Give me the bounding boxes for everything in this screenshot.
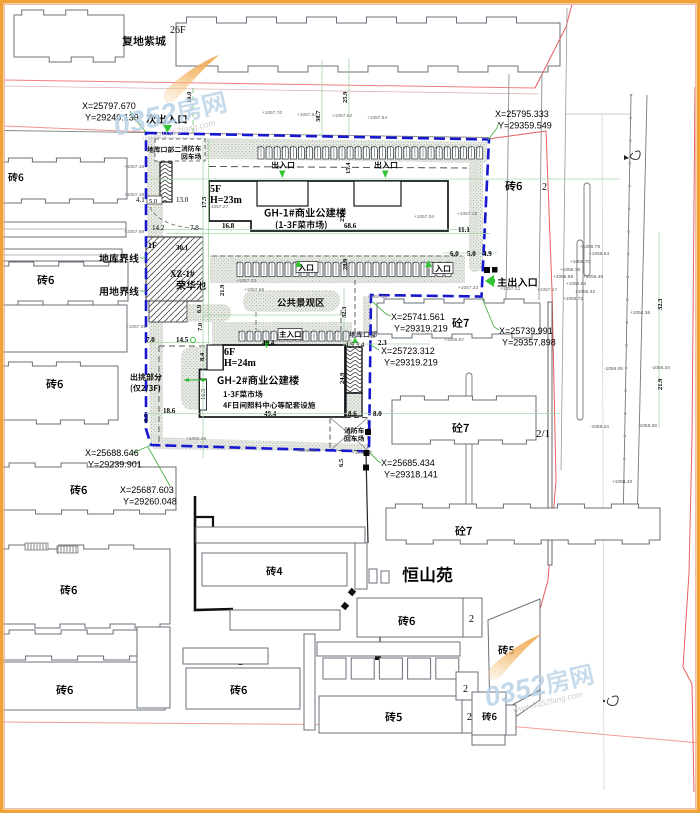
svg-text:Y=29260.048: Y=29260.048 <box>123 497 177 507</box>
svg-text:+1056.45: +1056.45 <box>583 274 603 280</box>
svg-text:X=25685.434: X=25685.434 <box>381 458 435 468</box>
svg-text:+1056.93: +1056.93 <box>296 448 316 454</box>
svg-text:+1057.23: +1057.23 <box>458 285 478 291</box>
svg-text:+1057.22: +1057.22 <box>500 286 520 292</box>
svg-text:30.1: 30.1 <box>176 244 189 252</box>
svg-text:6.9: 6.9 <box>196 304 203 313</box>
svg-text:+1057.62: +1057.62 <box>332 113 352 119</box>
svg-text:+1057.04: +1057.04 <box>414 214 434 220</box>
svg-text:X=25741.561: X=25741.561 <box>391 312 445 322</box>
svg-text:+1057.30: +1057.30 <box>367 294 387 300</box>
svg-text:+1057.56: +1057.56 <box>244 287 264 293</box>
svg-text:+1056.54: +1056.54 <box>589 251 609 257</box>
svg-text:21.9: 21.9 <box>219 284 226 296</box>
svg-text:-1056.34: -1056.34 <box>651 365 670 371</box>
svg-text:16.8: 16.8 <box>222 222 235 230</box>
svg-text:Y=29239.901: Y=29239.901 <box>88 460 142 470</box>
svg-text:7.0: 7.0 <box>197 323 204 331</box>
svg-text:2/1: 2/1 <box>536 428 550 440</box>
svg-text:28.9: 28.9 <box>342 258 349 270</box>
svg-text:2: 2 <box>467 712 472 723</box>
svg-text:25.9: 25.9 <box>342 91 349 103</box>
svg-text:X=25723.312: X=25723.312 <box>381 346 435 356</box>
svg-text:49.4: 49.4 <box>262 339 275 347</box>
svg-text:Y=29359.549: Y=29359.549 <box>498 121 552 131</box>
svg-text:X=25795.333: X=25795.333 <box>495 109 549 119</box>
svg-text:15.4: 15.4 <box>345 162 352 174</box>
svg-text:17.5: 17.5 <box>201 196 208 208</box>
svg-text:XZ-1#: XZ-1# <box>170 269 195 279</box>
svg-text:Y=29357.898: Y=29357.898 <box>502 338 556 348</box>
svg-text:14.2: 14.2 <box>152 224 165 232</box>
svg-text:+1056.45: +1056.45 <box>186 436 206 442</box>
svg-text:7.0: 7.0 <box>146 336 155 344</box>
svg-text:68.6: 68.6 <box>344 222 357 230</box>
svg-text:5.0: 5.0 <box>467 250 476 258</box>
svg-text:+1057.18: +1057.18 <box>124 192 144 198</box>
svg-text:X=25739.991: X=25739.991 <box>499 326 553 336</box>
svg-text:13.0: 13.0 <box>176 196 189 204</box>
svg-text:+1056.68: +1056.68 <box>553 274 573 280</box>
svg-text:+1057.27: +1057.27 <box>208 204 228 210</box>
svg-text:4.9: 4.9 <box>483 250 492 258</box>
svg-text:5.0: 5.0 <box>149 198 157 205</box>
svg-text:+1056.87: +1056.87 <box>444 337 464 343</box>
svg-text:6.0: 6.0 <box>450 250 459 258</box>
svg-text:2: 2 <box>469 614 474 625</box>
svg-text:+1057.09: +1057.09 <box>126 324 146 330</box>
svg-text:6.5: 6.5 <box>338 458 345 467</box>
svg-text:26F: 26F <box>170 25 186 36</box>
svg-text:16.5: 16.5 <box>200 389 207 400</box>
svg-text:+1056.42: +1056.42 <box>575 289 595 295</box>
svg-text:32.3: 32.3 <box>657 298 664 310</box>
svg-text:+1056.70: +1056.70 <box>570 259 590 265</box>
svg-text:+1056.76: +1056.76 <box>560 267 580 273</box>
svg-text:1F: 1F <box>148 241 157 250</box>
svg-text:8.5: 8.5 <box>143 413 150 422</box>
svg-text:2: 2 <box>463 684 468 695</box>
svg-text:+1057.16: +1057.16 <box>124 164 144 170</box>
svg-text:+1057.33: +1057.33 <box>236 278 256 284</box>
svg-text:+1056.63: +1056.63 <box>566 281 586 287</box>
svg-text:18.6: 18.6 <box>163 407 176 415</box>
svg-text:25.9: 25.9 <box>339 210 346 222</box>
svg-text:-1056.24: -1056.24 <box>590 424 609 430</box>
svg-text:+1056.79: +1056.79 <box>580 244 600 250</box>
svg-text:7.8: 7.8 <box>190 224 199 232</box>
svg-text:24.9: 24.9 <box>339 372 346 384</box>
svg-text:8.6: 8.6 <box>348 410 357 418</box>
svg-text:11.1: 11.1 <box>458 226 470 234</box>
svg-text:21.9: 21.9 <box>657 378 664 390</box>
svg-text:+1057.18: +1057.18 <box>457 211 477 217</box>
svg-text:X=25688.646: X=25688.646 <box>85 448 139 458</box>
svg-text:49.4: 49.4 <box>264 410 277 418</box>
svg-text:+1055.40: +1055.40 <box>612 479 632 485</box>
svg-text:+1057.64: +1057.64 <box>367 115 387 121</box>
svg-text:Y=29319.219: Y=29319.219 <box>384 358 438 368</box>
svg-text:8.4: 8.4 <box>199 352 206 361</box>
svg-text:+1056.72: +1056.72 <box>563 296 583 302</box>
svg-text:14.5: 14.5 <box>176 336 189 344</box>
svg-text:Y=29318.141: Y=29318.141 <box>384 470 438 480</box>
svg-text:+1057.63: +1057.63 <box>297 112 317 118</box>
svg-text:32.3: 32.3 <box>341 306 348 318</box>
svg-text:X=25687.603: X=25687.603 <box>120 485 174 495</box>
svg-text:-1056.08: -1056.08 <box>638 423 657 429</box>
svg-text:8.0: 8.0 <box>373 410 382 418</box>
svg-text:4.9 3.4: 4.9 3.4 <box>345 341 365 349</box>
svg-text:+1057.17: +1057.17 <box>537 287 557 293</box>
svg-text:5F: 5F <box>210 184 221 195</box>
svg-text:Y=29319.219: Y=29319.219 <box>394 324 448 334</box>
svg-text:-1056.08: -1056.08 <box>604 366 623 372</box>
svg-text:+1057.68: +1057.68 <box>124 229 144 235</box>
svg-text:+1054.36: +1054.36 <box>630 310 650 316</box>
svg-text:6F: 6F <box>224 347 235 358</box>
svg-text:2: 2 <box>542 182 547 193</box>
svg-text:+1057.70: +1057.70 <box>262 110 282 116</box>
svg-text:H=24m: H=24m <box>224 358 256 369</box>
